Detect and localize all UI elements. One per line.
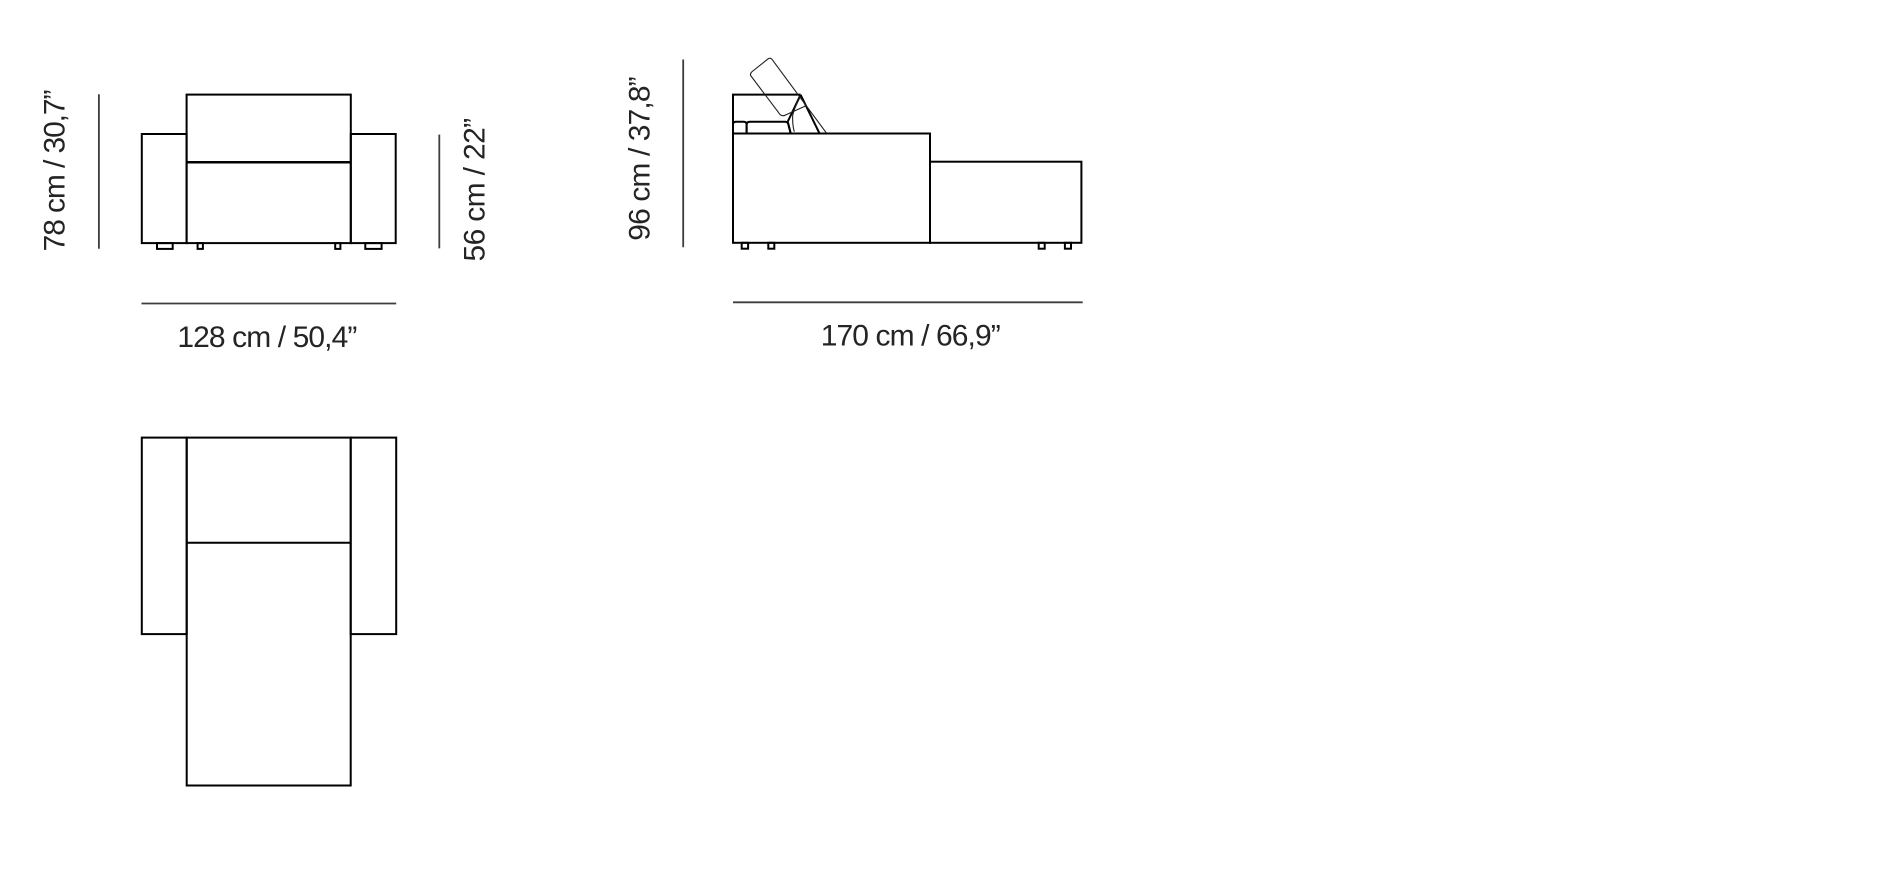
svg-text:170 cm / 66,9”: 170 cm / 66,9”: [821, 320, 1000, 353]
svg-text:78 cm / 30,7”: 78 cm / 30,7”: [39, 91, 72, 252]
svg-text:96 cm / 37,8”: 96 cm / 37,8”: [624, 77, 657, 240]
svg-text:128 cm / 50,4”: 128 cm / 50,4”: [177, 321, 356, 354]
svg-text:56 cm / 22”: 56 cm / 22”: [459, 119, 492, 262]
